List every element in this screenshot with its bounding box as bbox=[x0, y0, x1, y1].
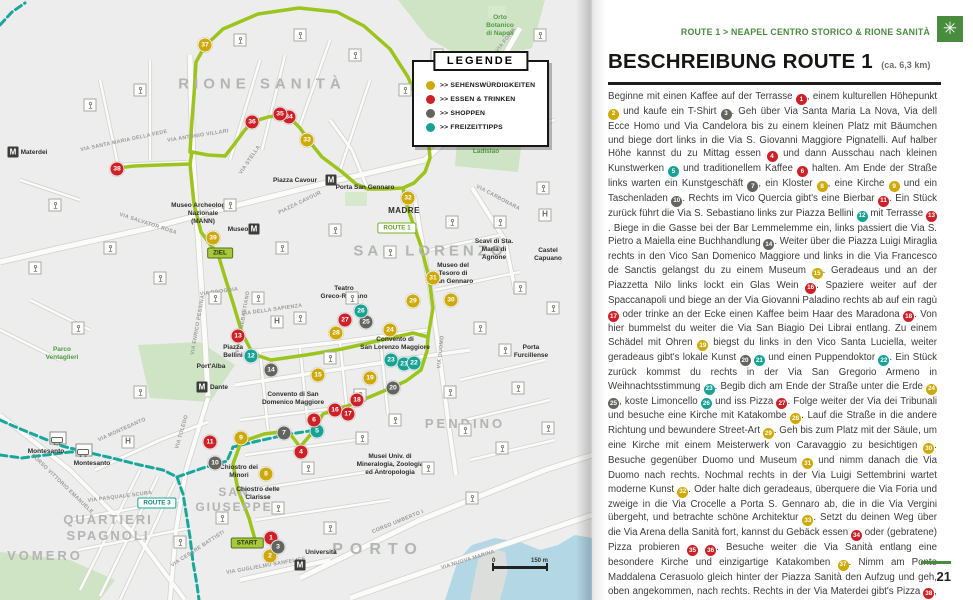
metro-icon: M bbox=[197, 382, 208, 393]
church-icon bbox=[459, 424, 472, 437]
church-icon bbox=[514, 282, 527, 295]
church-icon bbox=[329, 224, 342, 237]
page-title: BESCHREIBUNG ROUTE 1 bbox=[608, 50, 873, 73]
inline-marker-badge: 6 bbox=[797, 166, 808, 177]
place-label: Montesanto bbox=[28, 448, 64, 456]
legend-item-label: >> SEHENSWÜRDIGKEITEN bbox=[440, 82, 535, 89]
church-icon bbox=[294, 312, 307, 325]
place-label: Convento di San Domenico Maggiore bbox=[262, 391, 324, 407]
place-label: Scavi di Sta. Maria di Agnone bbox=[475, 238, 513, 262]
legend-color-dot bbox=[426, 81, 435, 90]
church-icon bbox=[324, 352, 337, 365]
legend-item: >> SEHENSWÜRDIGKEITEN bbox=[426, 81, 537, 90]
metro-icon: M bbox=[249, 224, 260, 235]
inline-marker-badge: 4 bbox=[767, 151, 778, 162]
place-label: Chiostro dei Minori bbox=[220, 464, 258, 480]
inline-marker-badge: 22 bbox=[878, 355, 889, 366]
church-icon bbox=[512, 382, 525, 395]
page-number: 21 bbox=[921, 569, 951, 584]
inline-marker-badge: 9 bbox=[889, 181, 900, 192]
map-marker-4: 4 bbox=[294, 445, 309, 460]
church-icon bbox=[399, 84, 412, 97]
place-label: Musei Univ. di Mineralogia, Zoologia ed … bbox=[357, 453, 424, 477]
church-icon bbox=[474, 322, 487, 335]
map-marker-27: 27 bbox=[338, 313, 353, 328]
map-marker-31: 31 bbox=[426, 271, 441, 286]
inline-marker-badge: 20 bbox=[740, 355, 751, 366]
legend-title: LEGENDE bbox=[433, 51, 528, 71]
place-label: Castel Capuano bbox=[534, 247, 562, 263]
map-marker-33: 33 bbox=[300, 133, 315, 148]
inline-marker-badge: 31 bbox=[802, 458, 813, 469]
church-icon bbox=[384, 246, 397, 259]
inline-marker-badge: 18 bbox=[903, 311, 914, 322]
church-icon bbox=[272, 502, 285, 515]
inline-marker-badge: 25 bbox=[608, 398, 619, 409]
map-marker-12: 12 bbox=[244, 349, 259, 364]
legend-item: >> ESSEN & TRINKEN bbox=[426, 95, 537, 104]
inline-marker-badge: 15 bbox=[812, 268, 823, 279]
place-label: Teatro Greco-Romano bbox=[321, 285, 368, 301]
legend-color-dot bbox=[426, 123, 435, 132]
map-marker-39: 39 bbox=[206, 231, 221, 246]
funicular-icon bbox=[76, 444, 93, 457]
church-icon bbox=[446, 216, 459, 229]
funicular-icon bbox=[50, 432, 67, 445]
church-icon bbox=[537, 182, 550, 195]
church-icon bbox=[224, 199, 237, 212]
place-label: Piazza Cavour bbox=[273, 177, 317, 185]
district-label: RIONE SANITÀ bbox=[178, 76, 346, 95]
map-marker-37: 37 bbox=[198, 38, 213, 53]
asterisk-icon: ✳ bbox=[937, 16, 963, 42]
route-length: (ca. 6,3 km) bbox=[881, 60, 930, 70]
district-label: QUARTIERI SPAGNOLI bbox=[63, 512, 153, 545]
place-label: Museo bbox=[228, 226, 249, 234]
map-marker-35: 35 bbox=[273, 107, 288, 122]
place-label: Port'Alba bbox=[197, 363, 226, 371]
church-icon bbox=[346, 292, 359, 305]
inline-marker-badge: 28 bbox=[790, 413, 801, 424]
place-label: Porta Furcillense bbox=[514, 344, 548, 360]
church-icon bbox=[324, 522, 337, 535]
church-icon bbox=[49, 199, 62, 212]
map-marker-28: 28 bbox=[329, 326, 344, 341]
page-number-rule bbox=[921, 561, 951, 564]
inline-marker-badge: 12 bbox=[857, 211, 868, 222]
metro-icon: M bbox=[8, 147, 19, 158]
church-icon bbox=[294, 29, 307, 42]
inline-marker-badge: 37 bbox=[838, 560, 849, 571]
district-label: PORTO bbox=[332, 540, 424, 560]
place-label: Orto Botanico di Napoli bbox=[486, 14, 514, 38]
church-icon bbox=[84, 99, 97, 112]
map-marker-15: 15 bbox=[311, 368, 326, 383]
hospital-icon: H bbox=[122, 436, 135, 449]
church-icon bbox=[302, 462, 315, 475]
legend-item-label: >> SHOPPEN bbox=[440, 110, 485, 117]
church-icon bbox=[356, 432, 369, 445]
map-marker-38: 38 bbox=[110, 162, 125, 177]
description-page: ROUTE 1 > NEAPEL CENTRO STORICO & RIONE … bbox=[592, 0, 973, 600]
church-icon bbox=[349, 49, 362, 62]
church-icon bbox=[252, 292, 265, 305]
map-marker-19: 19 bbox=[363, 371, 378, 386]
legend-item-label: >> ESSEN & TRINKEN bbox=[440, 96, 515, 103]
inline-marker-badge: 27 bbox=[776, 398, 787, 409]
route-badge-route-1: ROUTE 1 bbox=[377, 223, 416, 234]
inline-marker-badge: 33 bbox=[802, 515, 813, 526]
inline-marker-badge: 21 bbox=[754, 355, 765, 366]
legend-item: >> SHOPPEN bbox=[426, 109, 537, 118]
place-label: Parco Ventaglieri bbox=[46, 346, 79, 362]
map-marker-7: 7 bbox=[277, 426, 292, 441]
map-page: RIONE SANITÀSAN LORENZOPENDINOQUARTIERI … bbox=[0, 0, 592, 600]
inline-marker-badge: 8 bbox=[817, 181, 828, 192]
inline-marker-badge: 30 bbox=[923, 443, 934, 454]
place-label: Piazza Bellini bbox=[223, 344, 243, 360]
map-marker-11: 11 bbox=[203, 435, 218, 450]
map-marker-20: 20 bbox=[386, 381, 401, 396]
inline-marker-badge: 36 bbox=[705, 545, 716, 556]
inline-marker-badge: 24 bbox=[926, 384, 937, 395]
metro-icon: M bbox=[295, 560, 306, 571]
map-marker-26: 26 bbox=[354, 304, 369, 319]
church-icon bbox=[209, 292, 222, 305]
map-marker-8: 8 bbox=[259, 467, 274, 482]
church-icon bbox=[234, 34, 247, 47]
map-marker-22: 22 bbox=[407, 356, 422, 371]
church-icon bbox=[72, 322, 85, 335]
church-icon bbox=[29, 262, 42, 275]
inline-marker-badge: 35 bbox=[687, 545, 698, 556]
place-label: Materdei bbox=[21, 149, 48, 157]
map-marker-13: 13 bbox=[231, 329, 246, 344]
book-spread: RIONE SANITÀSAN LORENZOPENDINOQUARTIERI … bbox=[0, 0, 973, 600]
inline-marker-badge: 10 bbox=[671, 196, 682, 207]
legend-item: >> FREIZEITTIPPS bbox=[426, 123, 537, 132]
metro-icon: M bbox=[326, 175, 337, 186]
title-block: BESCHREIBUNG ROUTE 1 (ca. 6,3 km) bbox=[608, 50, 941, 85]
inline-marker-badge: 5 bbox=[668, 166, 679, 177]
church-icon bbox=[174, 536, 187, 549]
church-icon bbox=[499, 344, 512, 357]
map-marker-29: 29 bbox=[406, 294, 421, 309]
route-badge-ziel: ZIEL bbox=[207, 248, 233, 259]
inline-marker-badge: 1 bbox=[796, 94, 807, 105]
church-icon bbox=[216, 512, 229, 525]
place-label: Montesanto bbox=[74, 460, 110, 468]
inline-marker-badge: 11 bbox=[878, 196, 889, 207]
inline-marker-badge: 3 bbox=[721, 109, 732, 120]
scale-bar: 0 150 m bbox=[492, 558, 548, 569]
hospital-icon: H bbox=[539, 209, 552, 222]
inline-marker-badge: 26 bbox=[701, 398, 712, 409]
church-icon bbox=[422, 462, 435, 475]
church-icon bbox=[389, 414, 402, 427]
church-icon bbox=[134, 386, 147, 399]
legend: LEGENDE >> SEHENSWÜRDIGKEITEN>> ESSEN & … bbox=[412, 60, 549, 147]
church-icon bbox=[444, 386, 457, 399]
map-marker-32: 32 bbox=[401, 191, 416, 206]
legend-item-label: >> FREIZEITTIPPS bbox=[440, 124, 503, 131]
church-icon bbox=[466, 492, 479, 505]
map-marker-9: 9 bbox=[234, 431, 249, 446]
inline-marker-badge: 16 bbox=[805, 283, 816, 294]
inline-marker-badge: 32 bbox=[677, 487, 688, 498]
church-icon bbox=[547, 302, 560, 315]
church-icon bbox=[496, 442, 509, 455]
church-icon bbox=[276, 242, 289, 255]
map-marker-36: 36 bbox=[245, 115, 260, 130]
page-header: ROUTE 1 > NEAPEL CENTRO STORICO & RIONE … bbox=[681, 16, 963, 42]
place-label: Porta San Gennaro bbox=[336, 184, 395, 192]
route-breadcrumb: ROUTE 1 > NEAPEL CENTRO STORICO & RIONE … bbox=[681, 27, 930, 37]
map-marker-14: 14 bbox=[264, 363, 279, 378]
inline-marker-badge: 7 bbox=[747, 181, 758, 192]
district-label: VOMERO bbox=[7, 548, 83, 564]
inline-marker-badge: 19 bbox=[697, 340, 708, 351]
church-icon bbox=[494, 216, 507, 229]
map-marker-6: 6 bbox=[307, 413, 322, 428]
inline-marker-badge: 23 bbox=[704, 384, 715, 395]
church-icon bbox=[154, 272, 167, 285]
inline-marker-badge: 13 bbox=[926, 211, 937, 222]
place-label: Università bbox=[305, 549, 336, 557]
scale-line bbox=[492, 566, 548, 569]
legend-color-dot bbox=[426, 109, 435, 118]
church-icon bbox=[542, 422, 555, 435]
place-label: MADRE bbox=[388, 206, 420, 216]
route-description-text: Beginne mit einen Kaffee auf der Terrass… bbox=[608, 90, 937, 600]
inline-marker-badge: 2 bbox=[608, 109, 619, 120]
route-badge-route-3: ROUTE 3 bbox=[137, 498, 176, 509]
church-icon bbox=[134, 84, 147, 97]
map-marker-23: 23 bbox=[384, 353, 399, 368]
place-label: Convento di San Lorenzo Maggiore bbox=[360, 336, 430, 352]
inline-marker-badge: 34 bbox=[851, 530, 862, 541]
map-marker-18: 18 bbox=[350, 393, 365, 408]
inline-marker-badge: 29 bbox=[763, 428, 774, 439]
hospital-icon: H bbox=[271, 316, 284, 329]
map-marker-30: 30 bbox=[444, 293, 459, 308]
route-badge-start: START bbox=[231, 538, 264, 549]
inline-marker-badge: 38 bbox=[923, 588, 934, 599]
map-marker-10: 10 bbox=[208, 456, 223, 471]
legend-color-dot bbox=[426, 95, 435, 104]
place-label: Dante bbox=[210, 384, 228, 392]
map-marker-24: 24 bbox=[383, 323, 398, 338]
place-label: Chiostro delle Clarisse bbox=[236, 486, 279, 502]
inline-marker-badge: 14 bbox=[763, 239, 774, 250]
map-marker-3: 3 bbox=[271, 540, 286, 555]
inline-marker-badge: 17 bbox=[608, 311, 619, 322]
map-marker-17: 17 bbox=[341, 407, 356, 422]
church-icon bbox=[104, 242, 117, 255]
page-number-block: 21 bbox=[921, 561, 951, 584]
church-icon bbox=[534, 29, 547, 42]
